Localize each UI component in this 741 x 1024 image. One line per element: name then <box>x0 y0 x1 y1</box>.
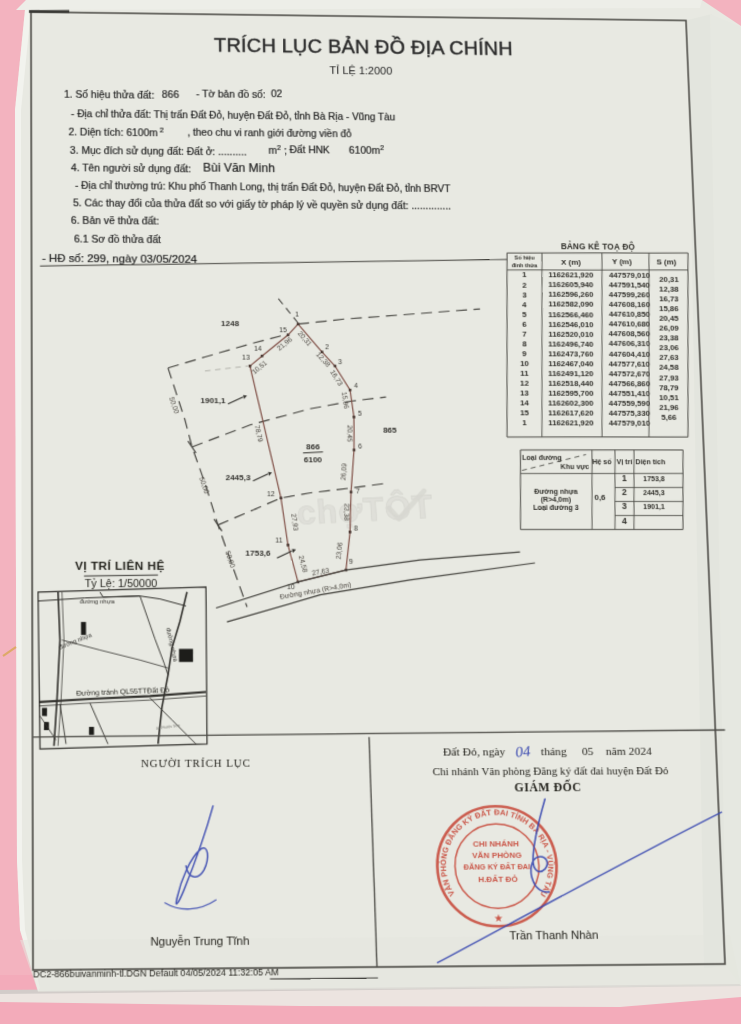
svg-text:1162596,260: 1162596,260 <box>548 290 593 299</box>
svg-text:20,45: 20,45 <box>345 425 352 442</box>
svg-text:Diện tích: Diện tích <box>635 459 665 466</box>
svg-text:Bùi Văn Minh: Bùi Văn Minh <box>203 162 275 175</box>
svg-text:447575,330: 447575,330 <box>609 408 651 417</box>
svg-text:20,31: 20,31 <box>296 330 313 348</box>
svg-text:447610,680: 447610,680 <box>609 320 650 329</box>
svg-text:2: 2 <box>622 487 628 497</box>
svg-text:ĐĂNG KÝ ĐẤT ĐAI: ĐĂNG KÝ ĐẤT ĐAI <box>463 861 530 872</box>
svg-text:- Địa chỉ thường trú: Khu phố: - Địa chỉ thường trú: Khu phố Thanh Long… <box>75 181 450 195</box>
svg-text:7: 7 <box>356 488 360 495</box>
svg-text:447572,670: 447572,670 <box>609 369 651 378</box>
svg-text:Loại đường 3: Loại đường 3 <box>533 505 579 512</box>
svg-text:BẢNG KÊ TOẠ ĐỘ: BẢNG KÊ TOẠ ĐỘ <box>561 242 635 251</box>
svg-text:02: 02 <box>271 90 283 101</box>
svg-text:1162496,740: 1162496,740 <box>548 339 593 348</box>
svg-text:1162605,940: 1162605,940 <box>548 280 593 289</box>
svg-text:1901,1: 1901,1 <box>200 396 226 405</box>
svg-text:6100m2: 6100m2 <box>349 145 385 157</box>
svg-text:1162546,010: 1162546,010 <box>548 320 593 329</box>
svg-text:866: 866 <box>306 442 320 451</box>
svg-text:447599,260: 447599,260 <box>609 290 650 299</box>
svg-text:Đất HNK: Đất HNK <box>289 145 330 157</box>
svg-text:21,96: 21,96 <box>276 336 294 352</box>
svg-text:2: 2 <box>522 280 527 289</box>
svg-text:6: 6 <box>522 320 527 329</box>
svg-text:- Địa chỉ thửa đất: Thị trấn Đ: - Địa chỉ thửa đất: Thị trấn Đất Đỏ, huy… <box>71 110 395 124</box>
svg-text:★: ★ <box>494 913 504 925</box>
svg-text:m2 ;: m2 ; <box>268 145 286 157</box>
svg-text:26,09: 26,09 <box>340 463 349 481</box>
svg-text:27,93: 27,93 <box>289 513 299 531</box>
svg-text:12,38: 12,38 <box>659 284 679 293</box>
svg-text:1901,1: 1901,1 <box>643 504 665 511</box>
svg-text:Loại đường: Loại đường <box>522 455 562 462</box>
svg-text:447591,540: 447591,540 <box>609 280 650 289</box>
svg-text:10,51: 10,51 <box>659 393 680 402</box>
svg-text:1162602,300: 1162602,300 <box>548 398 594 407</box>
svg-text:1: 1 <box>522 418 527 427</box>
svg-text:Khu vực: Khu vực <box>561 464 590 471</box>
svg-text:1162621,920: 1162621,920 <box>548 418 594 427</box>
svg-text:Trần Thanh Nhàn: Trần Thanh Nhàn <box>509 930 598 944</box>
svg-text:4: 4 <box>522 300 527 309</box>
svg-text:78,79: 78,79 <box>659 383 679 392</box>
svg-text:27,63: 27,63 <box>659 353 679 362</box>
svg-text:, theo chu vi ranh giới đường: , theo chu vi ranh giới đường viền đỏ <box>187 128 352 140</box>
svg-text:1: 1 <box>295 312 299 319</box>
svg-text:5: 5 <box>522 310 527 319</box>
svg-text:10,51: 10,51 <box>251 360 269 376</box>
svg-text:Nguyễn Trung Tĩnh: Nguyễn Trung Tĩnh <box>150 934 249 949</box>
svg-text:15: 15 <box>279 327 287 334</box>
svg-text:04: 04 <box>515 743 532 761</box>
svg-text:S (m): S (m) <box>656 258 677 267</box>
svg-text:2445,3: 2445,3 <box>643 490 665 497</box>
svg-text:23,06: 23,06 <box>659 343 679 352</box>
svg-text:chợTÔT: chợTÔT <box>295 486 434 532</box>
svg-text:2. Diện tích: 6100m 2: 2. Diện tích: 6100m 2 <box>68 127 164 140</box>
svg-text:11: 11 <box>275 538 283 545</box>
svg-text:Y (m): Y (m) <box>612 258 632 267</box>
svg-text:12: 12 <box>267 491 275 498</box>
svg-text:1162467,040: 1162467,040 <box>548 359 594 368</box>
svg-text:15,86: 15,86 <box>340 392 350 410</box>
svg-text:1: 1 <box>622 473 628 483</box>
svg-text:23,38: 23,38 <box>342 503 350 521</box>
svg-text:23,06: 23,06 <box>335 542 344 560</box>
svg-text:9: 9 <box>349 559 353 566</box>
svg-text:0,6: 0,6 <box>594 493 606 502</box>
svg-text:6: 6 <box>358 444 362 451</box>
svg-text:4: 4 <box>622 515 628 525</box>
svg-text:đường nhựa: đường nhựa <box>80 600 116 606</box>
svg-text:24,58: 24,58 <box>659 363 680 372</box>
svg-text:12: 12 <box>520 379 529 388</box>
svg-text:20,31: 20,31 <box>659 275 679 284</box>
svg-text:23,38: 23,38 <box>659 334 680 343</box>
svg-text:2445,3: 2445,3 <box>225 473 251 482</box>
svg-text:26,09: 26,09 <box>659 324 679 333</box>
svg-text:1753,6: 1753,6 <box>245 549 271 558</box>
svg-text:CHI NHÁNH: CHI NHÁNH <box>473 839 520 849</box>
svg-text:78,79: 78,79 <box>253 425 264 443</box>
svg-text:1162491,120: 1162491,120 <box>548 369 594 378</box>
svg-text:7: 7 <box>522 330 527 339</box>
svg-text:447577,610: 447577,610 <box>609 359 651 368</box>
svg-text:3. Mục đích sử dụng đất: Đất ở: 3. Mục đích sử dụng đất: Đất ở: ........… <box>70 145 247 159</box>
svg-text:447579,010: 447579,010 <box>609 270 650 279</box>
svg-text:8: 8 <box>354 526 358 533</box>
svg-text:(R>4,0m): (R>4,0m) <box>541 497 571 504</box>
svg-text:1753,8: 1753,8 <box>643 476 665 483</box>
svg-text:1162621,920: 1162621,920 <box>548 270 593 279</box>
svg-text:VĂN PHÒNG: VĂN PHÒNG <box>472 851 522 861</box>
svg-text:1162582,090: 1162582,090 <box>548 300 593 309</box>
svg-text:X (m): X (m) <box>561 258 582 267</box>
svg-text:447579,010: 447579,010 <box>609 418 651 427</box>
svg-text:20,45: 20,45 <box>659 314 680 323</box>
svg-text:Chi nhánh Văn phòng Đăng ký đấ: Chi nhánh Văn phòng Đăng ký đất đai huyệ… <box>433 766 669 779</box>
svg-text:866: 866 <box>162 90 180 101</box>
svg-text:27,93: 27,93 <box>659 373 679 382</box>
svg-text:447606,310: 447606,310 <box>609 339 650 348</box>
svg-text:1: 1 <box>522 271 527 280</box>
svg-text:11: 11 <box>520 369 529 378</box>
svg-text:9: 9 <box>522 349 527 358</box>
svg-text:21,96: 21,96 <box>659 402 679 411</box>
svg-text:2: 2 <box>325 344 329 351</box>
svg-text:5. Các thay đổi của thửa đất s: 5. Các thay đổi của thửa đất so với giấy… <box>73 198 451 213</box>
svg-text:1162595,700: 1162595,700 <box>548 389 594 398</box>
svg-text:447559,590: 447559,590 <box>609 398 651 407</box>
svg-text:50,00: 50,00 <box>197 476 210 495</box>
svg-text:DC2-866buivanminh-tl.DGN Defau: DC2-866buivanminh-tl.DGN Default 04/05/2… <box>33 967 279 980</box>
svg-text:4. Tên người sử dụng đất:: 4. Tên người sử dụng đất: <box>71 163 191 176</box>
svg-text:1162566,460: 1162566,460 <box>548 310 593 319</box>
svg-text:05: 05 <box>582 746 594 759</box>
svg-text:1162617,620: 1162617,620 <box>548 408 594 417</box>
svg-text:1. Số hiệu thửa đất:: 1. Số hiệu thửa đất: <box>64 89 154 102</box>
svg-text:năm 2024: năm 2024 <box>606 746 653 759</box>
svg-text:16,73: 16,73 <box>328 369 343 387</box>
svg-text:6. Bản vẽ thửa đất:: 6. Bản vẽ thửa đất: <box>71 215 159 228</box>
svg-text:NGƯỜI TRÍCH LỤC: NGƯỜI TRÍCH LỤC <box>141 757 251 770</box>
svg-text:TRÍCH LỤC BẢN ĐỒ ĐỊA CHÍNH: TRÍCH LỤC BẢN ĐỒ ĐỊA CHÍNH <box>214 33 513 60</box>
svg-text:15,86: 15,86 <box>659 304 679 313</box>
svg-text:447610,850: 447610,850 <box>609 310 650 319</box>
svg-text:10: 10 <box>520 359 529 368</box>
svg-text:13: 13 <box>520 389 529 398</box>
svg-text:GIÁM ĐỐC: GIÁM ĐỐC <box>514 780 581 794</box>
svg-text:VỊ TRÍ LIÊN HỆ: VỊ TRÍ LIÊN HỆ <box>75 560 165 574</box>
svg-text:1248: 1248 <box>221 319 240 328</box>
svg-text:15: 15 <box>520 408 530 417</box>
svg-text:Đất Đỏ, ngày: Đất Đỏ, ngày <box>443 746 506 759</box>
svg-text:3: 3 <box>338 359 342 366</box>
svg-text:TỈ LỆ 1:2000: TỈ LỆ 1:2000 <box>329 64 392 77</box>
svg-text:đỉnh thửa: đỉnh thửa <box>512 263 539 269</box>
svg-text:Đường nhựa: Đường nhựa <box>534 489 578 496</box>
svg-text:1162520,010: 1162520,010 <box>548 330 593 339</box>
svg-text:Vị trí: Vị trí <box>617 459 634 466</box>
svg-text:447551,410: 447551,410 <box>609 389 651 398</box>
svg-text:8: 8 <box>522 339 527 348</box>
svg-text:- Tờ bản đồ số:: - Tờ bản đồ số: <box>196 89 266 102</box>
svg-text:6100: 6100 <box>304 455 323 464</box>
svg-text:14: 14 <box>254 346 262 353</box>
svg-text:Hệ số: Hệ số <box>592 458 611 466</box>
svg-text:50,00: 50,00 <box>167 396 180 415</box>
svg-text:447566,860: 447566,860 <box>609 379 651 388</box>
svg-text:16,73: 16,73 <box>659 294 679 303</box>
svg-text:6.1 Sơ đồ thửa đất: 6.1 Sơ đồ thửa đất <box>74 233 161 246</box>
svg-text:tháng: tháng <box>541 746 568 759</box>
svg-text:3: 3 <box>622 501 628 511</box>
svg-text:1162518,440: 1162518,440 <box>548 379 594 388</box>
svg-text:1162473,760: 1162473,760 <box>548 349 593 358</box>
svg-text:5,66: 5,66 <box>661 412 677 421</box>
svg-text:14: 14 <box>520 398 530 407</box>
svg-text:13: 13 <box>242 355 250 362</box>
svg-text:50,00: 50,00 <box>223 550 236 569</box>
svg-text:4: 4 <box>354 383 358 390</box>
svg-text:447608,560: 447608,560 <box>609 329 650 338</box>
svg-text:447604,410: 447604,410 <box>609 349 651 358</box>
svg-text:12,38: 12,38 <box>314 351 331 368</box>
svg-text:5: 5 <box>358 411 362 418</box>
svg-text:865: 865 <box>383 426 397 435</box>
svg-text:447608,160: 447608,160 <box>609 300 650 309</box>
svg-text:Số hiệu: Số hiệu <box>514 255 534 262</box>
svg-text:24,58: 24,58 <box>297 555 309 574</box>
svg-text:H.ĐẤT ĐỎ: H.ĐẤT ĐỎ <box>478 873 518 884</box>
svg-text:3: 3 <box>522 290 527 299</box>
